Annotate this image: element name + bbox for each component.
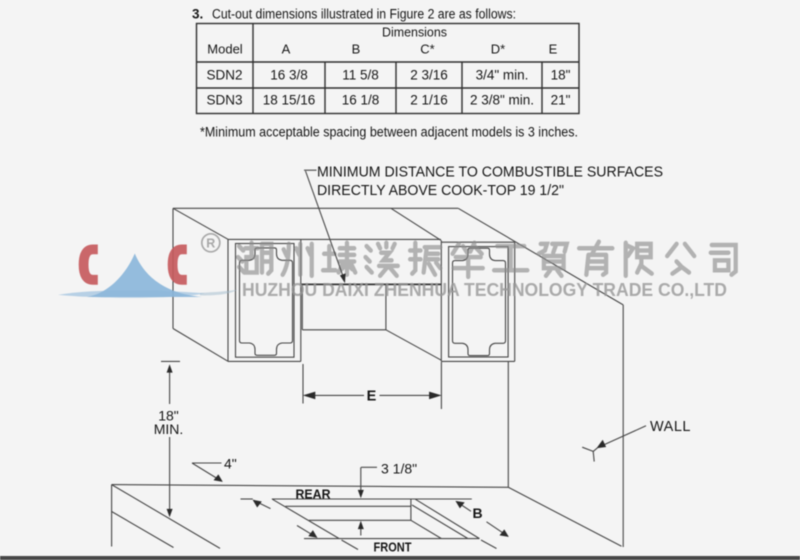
svg-text:MINIMUM DISTANCE TO COMBUSTIBL: MINIMUM DISTANCE TO COMBUSTIBLE SURFACES xyxy=(317,164,663,181)
svg-text:3.: 3. xyxy=(192,7,203,22)
svg-text:11 5/8: 11 5/8 xyxy=(342,67,379,82)
svg-text:Cut-out dimensions illustrated: Cut-out dimensions illustrated in Figure… xyxy=(212,7,516,22)
svg-text:D*: D* xyxy=(491,42,505,57)
svg-text:E: E xyxy=(549,42,558,57)
svg-text:2 3/8" min.: 2 3/8" min. xyxy=(470,93,534,108)
svg-text:B: B xyxy=(472,505,482,521)
svg-text:*Minimum acceptable spacing be: *Minimum acceptable spacing between adja… xyxy=(200,125,578,140)
svg-text:2 3/16: 2 3/16 xyxy=(410,67,448,82)
svg-text:2 1/16: 2 1/16 xyxy=(410,93,448,108)
svg-text:A: A xyxy=(282,42,291,57)
svg-text:SDN2: SDN2 xyxy=(206,67,242,82)
svg-text:R: R xyxy=(206,237,215,251)
svg-text:C*: C* xyxy=(420,42,434,57)
svg-text:16 1/8: 16 1/8 xyxy=(342,93,380,108)
svg-text:DIRECTLY ABOVE COOK-TOP 19 1/2: DIRECTLY ABOVE COOK-TOP 19 1/2" xyxy=(317,182,564,199)
svg-text:SDN3: SDN3 xyxy=(206,93,242,108)
svg-text:18": 18" xyxy=(551,67,571,82)
svg-text:MIN.: MIN. xyxy=(154,421,184,437)
svg-text:WALL: WALL xyxy=(650,419,691,435)
svg-text:FRONT: FRONT xyxy=(374,541,412,555)
svg-text:E: E xyxy=(367,389,377,405)
svg-text:4": 4" xyxy=(224,456,237,472)
svg-text:16 3/8: 16 3/8 xyxy=(270,67,308,82)
svg-text:HUZHOU DAIXI ZHENHUA TECHNOLOG: HUZHOU DAIXI ZHENHUA TECHNOLOGY TRADE CO… xyxy=(242,279,727,300)
svg-text:Dimensions: Dimensions xyxy=(382,25,447,40)
svg-text:21": 21" xyxy=(551,93,571,108)
svg-text:18 15/16: 18 15/16 xyxy=(263,93,316,108)
svg-text:Model: Model xyxy=(207,42,243,57)
svg-text:3 1/8": 3 1/8" xyxy=(381,461,417,477)
svg-text:3/4" min.: 3/4" min. xyxy=(476,67,529,82)
svg-text:B: B xyxy=(352,42,361,57)
svg-text:REAR: REAR xyxy=(296,488,331,502)
